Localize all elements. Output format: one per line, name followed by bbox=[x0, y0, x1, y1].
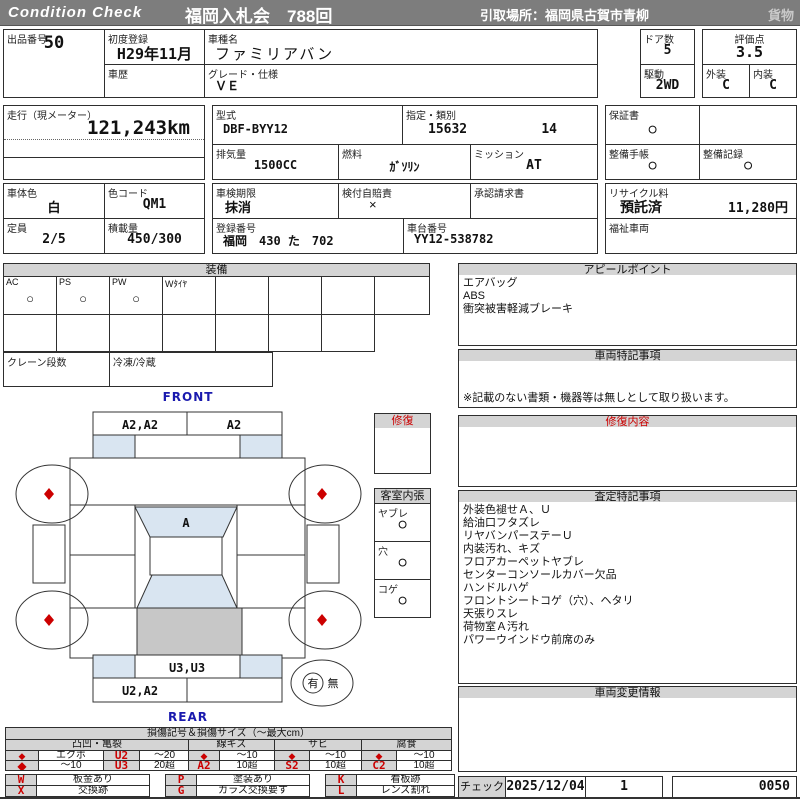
car-history-label: 車歴 bbox=[108, 66, 128, 81]
approval-request-cell: 承認請求書 bbox=[470, 183, 598, 219]
diamond-icon: ◆ bbox=[289, 751, 296, 761]
fuel-value: ｶﾞｿﾘﾝ bbox=[339, 158, 470, 175]
rear-bumper-left-shaded bbox=[93, 655, 135, 678]
presence-ellipse bbox=[291, 660, 353, 706]
score-cell: 評価点 3.5 bbox=[702, 29, 797, 65]
legend-cell: S2 bbox=[274, 760, 310, 771]
damage-code: L bbox=[338, 786, 345, 796]
mileage-value: 121,243km bbox=[4, 117, 204, 139]
damage-code: C2 bbox=[372, 761, 385, 771]
equipment-wtire-cell: Wﾀｲﾔ bbox=[162, 276, 216, 315]
equipment-pw-label: PW bbox=[112, 277, 127, 287]
legend-desc-cell: レンズ割れ bbox=[356, 785, 455, 797]
diamond-icon: ◆ bbox=[19, 751, 26, 761]
equipment-ac-label: AC bbox=[6, 277, 19, 287]
inspection-value: 抹消 bbox=[213, 197, 338, 216]
equipment-ps-cell: PS ○ bbox=[56, 276, 110, 315]
chassis-number-value: YY12-538782 bbox=[404, 232, 597, 246]
repair-box-header: 修復 bbox=[374, 413, 431, 429]
right-door-strip bbox=[307, 525, 339, 583]
rear-bumper-right-shaded bbox=[240, 655, 282, 678]
model-code-value: DBF-BYY12 bbox=[213, 122, 402, 136]
insurance-cell: 検付自賠責 × bbox=[338, 183, 471, 219]
equipment-empty-cell bbox=[162, 314, 216, 352]
legend-cell: 10超 bbox=[309, 760, 362, 771]
load-capacity-value: 450/300 bbox=[105, 232, 204, 247]
appeal-line: ABS bbox=[463, 290, 792, 303]
displacement-cell: 排気量 1500CC bbox=[212, 144, 339, 180]
assessment-line: リヤバンパーステーＵ bbox=[463, 530, 792, 543]
welfare-vehicle-cell: 福祉車両 bbox=[605, 218, 797, 254]
capacity-cell: 定員 2/5 bbox=[3, 218, 105, 254]
repair-box-body bbox=[374, 428, 431, 474]
drive-value: 2WD bbox=[641, 78, 694, 93]
lining-hole-value: ○ bbox=[375, 555, 430, 570]
model-name-cell: 車種名 ファミリアバン bbox=[204, 29, 598, 65]
sheet-code-value: 0050 bbox=[759, 782, 790, 792]
assessment-line: 外装色褪せＡ、Ｕ bbox=[463, 504, 792, 517]
recycle-fee-value: 11,280円 bbox=[728, 197, 788, 217]
doors-cell: ドア数 5 bbox=[640, 29, 695, 65]
equipment-empty-cell bbox=[268, 314, 322, 352]
freezer-cell: 冷凍/冷蔵 bbox=[109, 352, 273, 387]
auction-title: 福岡入札会 788回 bbox=[185, 2, 332, 27]
assessment-line: フロントシートコゲ（穴）、ヘタリ bbox=[463, 595, 792, 608]
exterior-grade-cell: 外装 C bbox=[702, 64, 750, 98]
divider bbox=[4, 157, 204, 158]
cargo-area-shaded bbox=[137, 608, 242, 658]
equipment-empty-cell bbox=[321, 276, 375, 315]
damage-code: P bbox=[178, 775, 185, 785]
exterior-grade-value: C bbox=[703, 78, 749, 93]
freezer-label: 冷凍/冷蔵 bbox=[113, 354, 156, 369]
maintenance-book-cell: 整備手帳 ○ bbox=[605, 144, 700, 180]
damage-code: K bbox=[338, 775, 345, 785]
damage-code: W bbox=[18, 775, 25, 785]
warranty-label: 保証書 bbox=[609, 107, 639, 122]
color-code-value: QM1 bbox=[105, 197, 204, 212]
car-damage-diagram: A2,A2 A2 A U3,U3 U2,A2 有 無 bbox=[5, 403, 370, 709]
diamond-icon: ◆ bbox=[376, 751, 383, 761]
page-bottom-rule bbox=[0, 797, 800, 799]
title-bar: Condition Check 福岡入札会 788回 引取場所：福岡県古賀市青柳… bbox=[0, 0, 800, 26]
rear-window bbox=[137, 575, 237, 608]
legend-cell: C2 bbox=[361, 760, 397, 771]
designation-cell: 指定・類別 15632 14 bbox=[402, 105, 598, 145]
crane-stages-cell: クレーン段数 bbox=[3, 352, 110, 387]
rear-left-damage-code: U2,A2 bbox=[122, 684, 158, 698]
maintenance-record-cell: 整備記録 ○ bbox=[699, 144, 797, 180]
rear-label: REAR bbox=[148, 710, 228, 724]
assessment-line: ハンドルハゲ bbox=[463, 582, 792, 595]
damage-code: A2 bbox=[197, 761, 210, 771]
windshield-damage-code: A bbox=[182, 516, 190, 530]
lot-number-value: 50 bbox=[4, 33, 104, 53]
lot-number-cell: 出品番号 50 bbox=[3, 29, 105, 98]
appeal-line: エアバッグ bbox=[463, 277, 792, 290]
warranty-cell: 保証書 ○ bbox=[605, 105, 700, 145]
change-info-body bbox=[458, 698, 797, 772]
legend-cell: 10超 bbox=[219, 760, 275, 771]
equipment-empty-cell bbox=[374, 276, 430, 315]
check-label-cell: チェック bbox=[458, 776, 506, 798]
pickup-location: 引取場所：福岡県古賀市青柳 bbox=[480, 5, 649, 24]
equipment-ps-label: PS bbox=[59, 277, 71, 287]
diamond-icon: ◆ bbox=[17, 761, 26, 771]
grade-cell: グレード・仕様 ＶＥ bbox=[204, 64, 598, 98]
vehicle-category-badge: 貨物 bbox=[768, 5, 794, 24]
designation-label: 指定・類別 bbox=[406, 107, 456, 122]
equipment-empty-cell bbox=[109, 314, 163, 352]
registration-number-value: 福岡 430 た 702 bbox=[213, 232, 403, 249]
inspection-cell: 車検期限 抹消 bbox=[212, 183, 339, 219]
rear-damage-code: U3,U3 bbox=[169, 661, 205, 675]
legend-cell: 20超 bbox=[139, 760, 190, 771]
front-bumper-right-shaded bbox=[240, 435, 282, 458]
equipment-ac-cell: AC ○ bbox=[3, 276, 57, 315]
legend-cell: ◆ bbox=[5, 760, 39, 771]
lining-burn-value: ○ bbox=[375, 593, 430, 608]
legend-desc-cell: 交換跡 bbox=[36, 785, 150, 797]
doors-value: 5 bbox=[641, 43, 694, 58]
equipment-empty-cell bbox=[3, 314, 57, 352]
assessment-line: パワーウインドウ前席のみ bbox=[463, 634, 792, 647]
check-count-cell: 1 bbox=[585, 776, 663, 798]
assessment-line: フロアカーペットヤブレ bbox=[463, 556, 792, 569]
damage-code: U3 bbox=[115, 761, 128, 771]
equipment-wtire-label: Wﾀｲﾔ bbox=[165, 277, 187, 290]
legend-desc-cell: ガラス交換要す bbox=[196, 785, 310, 797]
equipment-empty-cell bbox=[56, 314, 110, 352]
first-registration-cell: 初度登録 H29年11月 bbox=[104, 29, 205, 65]
score-value: 3.5 bbox=[703, 43, 796, 61]
drive-cell: 駆動 2WD bbox=[640, 64, 695, 98]
classification-value: 14 bbox=[541, 122, 557, 137]
interior-grade-value: C bbox=[750, 78, 796, 93]
legend-code-cell: G bbox=[165, 785, 197, 797]
capacity-value: 2/5 bbox=[4, 232, 104, 247]
equipment-pw-cell: PW ○ bbox=[109, 276, 163, 315]
color-code-cell: 色コード QM1 bbox=[104, 183, 205, 219]
lining-tear-value: ○ bbox=[375, 517, 430, 532]
damage-diamond-rear-left bbox=[44, 614, 54, 626]
damage-diamond-front-right bbox=[317, 488, 327, 500]
vehicle-notes-body: ※記載のない書類・機器等は無しとして取り扱います。 bbox=[458, 361, 797, 408]
assessment-notes-body: 外装色褪せＡ、Ｕ 給油口フタズレ リヤバンパーステーＵ 内装汚れ、キズ フロアカ… bbox=[458, 502, 797, 684]
welfare-vehicle-label: 福祉車両 bbox=[609, 220, 649, 235]
sheet-code-cell: 0050 bbox=[672, 776, 797, 798]
empty-cell bbox=[699, 105, 797, 145]
recycle-status-value: 預託済 bbox=[620, 197, 662, 217]
equipment-pw-value: ○ bbox=[110, 291, 162, 306]
fuel-cell: 燃料 ｶﾞｿﾘﾝ bbox=[338, 144, 471, 180]
first-registration-value: H29年11月 bbox=[105, 43, 204, 64]
lining-tear-cell: ヤブレ ○ bbox=[374, 503, 431, 542]
roof bbox=[150, 537, 222, 575]
assessment-line: 給油口フタズレ bbox=[463, 517, 792, 530]
repair-detail-body bbox=[458, 427, 797, 487]
front-bumper-left-shaded bbox=[93, 435, 135, 458]
front-right-damage-code: A2 bbox=[227, 418, 241, 432]
assessment-line: 荷物室Ａ汚れ bbox=[463, 621, 792, 634]
registration-number-cell: 登録番号 福岡 430 た 702 bbox=[212, 218, 404, 254]
legend-cell: U3 bbox=[103, 760, 140, 771]
interior-grade-cell: 内装 C bbox=[749, 64, 797, 98]
model-code-cell: 型式 DBF-BYY12 bbox=[212, 105, 403, 145]
assessment-line: センターコンソールカバー欠品 bbox=[463, 569, 792, 582]
load-capacity-cell: 積載量 450/300 bbox=[104, 218, 205, 254]
check-date-value: 2025/12/04 bbox=[506, 782, 584, 792]
equipment-header: 装備 bbox=[3, 263, 430, 277]
body-color-value: 白 bbox=[4, 197, 104, 216]
maintenance-record-value: ○ bbox=[700, 158, 796, 173]
transmission-cell: ミッション AT bbox=[470, 144, 598, 180]
lining-burn-cell: コゲ ○ bbox=[374, 579, 431, 618]
chassis-number-cell: 車台番号 YY12-538782 bbox=[403, 218, 598, 254]
front-left-damage-code: A2,A2 bbox=[122, 418, 158, 432]
recycle-fee-cell: リサイクル料 預託済 11,280円 bbox=[605, 183, 797, 219]
transmission-value: AT bbox=[471, 158, 597, 173]
equipment-ac-value: ○ bbox=[4, 291, 56, 306]
legend-cell: 10超 bbox=[396, 760, 452, 771]
damage-diamond-rear-right bbox=[317, 614, 327, 626]
vehicle-notes-disclaimer: ※記載のない書類・機器等は無しとして取り扱います。 bbox=[463, 392, 735, 405]
damage-code: G bbox=[178, 786, 185, 796]
warranty-value: ○ bbox=[606, 122, 699, 137]
equipment-empty-cell bbox=[268, 276, 322, 315]
model-code-label: 型式 bbox=[216, 107, 236, 122]
damage-code: X bbox=[18, 786, 25, 796]
left-door-strip bbox=[33, 525, 65, 583]
insurance-value: × bbox=[339, 197, 470, 212]
appeal-line: 衝突被害軽減ブレーキ bbox=[463, 303, 792, 316]
check-date-cell: 2025/12/04 bbox=[505, 776, 586, 798]
repair-box-title: 修復 bbox=[392, 415, 414, 427]
front-label: FRONT bbox=[148, 390, 228, 404]
divider bbox=[4, 139, 204, 140]
assessment-line: 天張りスレ bbox=[463, 608, 792, 621]
presence-yes: 有 bbox=[308, 676, 319, 690]
check-count-value: 1 bbox=[620, 782, 628, 792]
model-name-value: ファミリアバン bbox=[205, 43, 597, 64]
legend-cell: A2 bbox=[188, 760, 220, 771]
damage-diamond-front-left bbox=[44, 488, 54, 500]
appeal-points-body: エアバッグ ABS 衝突被害軽減ブレーキ bbox=[458, 275, 797, 346]
presence-no: 無 bbox=[328, 676, 339, 690]
equipment-ps-value: ○ bbox=[57, 291, 109, 306]
legend-code-cell: X bbox=[5, 785, 37, 797]
equipment-empty-cell bbox=[215, 276, 269, 315]
designation-value: 15632 bbox=[428, 122, 467, 137]
car-history-cell: 車歴 bbox=[104, 64, 205, 98]
maintenance-book-value: ○ bbox=[606, 158, 699, 173]
damage-code: S2 bbox=[285, 761, 298, 771]
mileage-cell: 走行（現メーター） 121,243km bbox=[3, 105, 205, 180]
assessment-line: 内装汚れ、キズ bbox=[463, 543, 792, 556]
legend-code-cell: L bbox=[325, 785, 357, 797]
diamond-icon: ◆ bbox=[201, 751, 208, 761]
grade-value: ＶＥ bbox=[205, 77, 597, 94]
lining-hole-cell: 穴 ○ bbox=[374, 541, 431, 580]
approval-request-label: 承認請求書 bbox=[474, 185, 524, 200]
damage-code: U2 bbox=[115, 751, 128, 761]
displacement-value: 1500CC bbox=[213, 158, 338, 172]
legend-cell: ～10 bbox=[38, 760, 104, 771]
equipment-empty-cell bbox=[321, 314, 375, 352]
crane-stages-label: クレーン段数 bbox=[7, 354, 67, 369]
equipment-empty-cell bbox=[215, 314, 269, 352]
body-color-cell: 車体色 白 bbox=[3, 183, 105, 219]
brand-logo: Condition Check bbox=[8, 4, 142, 21]
cabin-lining-header: 客室内張 bbox=[374, 488, 431, 504]
